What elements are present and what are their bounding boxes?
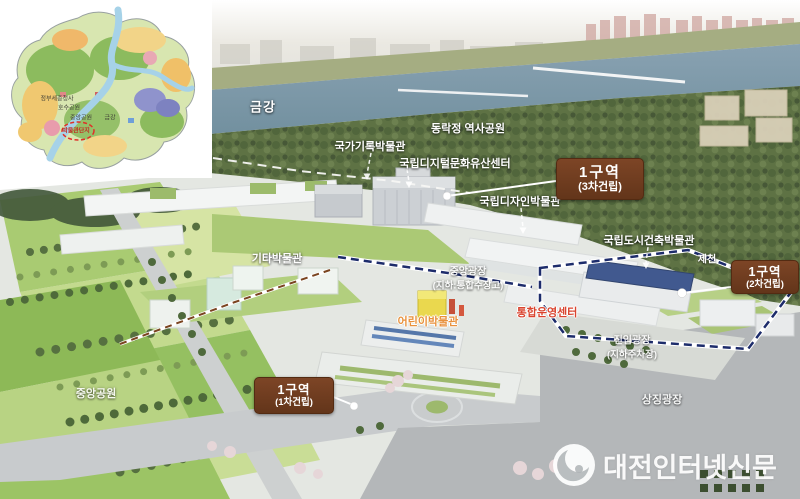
central-plaza-title: 중앙광장 [450,267,487,278]
watermark-text: 대전인터넷신문 [603,446,777,485]
label-national-archives-museum: 국가기록박물관 [335,138,406,154]
location-inset-map: 정부세종청사 호수공원 중앙공원 금강 박물관단지 [0,0,212,178]
label-central-park: 중앙공원 [76,385,116,401]
label-other-museums: 기타박물관 [252,250,303,266]
zone1-phase1-callout: 1구역 (1차건립) [254,377,334,414]
label-children-museum: 어린이박물관 [398,313,459,329]
entry-plaza-sub: (지하주차장) [607,347,657,361]
label-entry-plaza: 진입광장 (지하주차장) [607,332,657,361]
entry-plaza-title: 진입광장 [614,336,651,347]
zone1-phase2-title: 1구역 [732,265,798,279]
zone1-phase2-sub: (2차건립) [732,279,798,290]
inset-label-lake-park: 호수공원 [58,106,80,113]
news-photo-museum-complex-rendering: 정부세종청사 호수공원 중앙공원 금강 박물관단지 금강 국가기록박물관 동락정… [0,0,800,499]
label-jecheon-stream: 제천 [698,251,716,266]
inset-label-central-park: 중앙공원 [70,116,92,123]
inset-label-geum-river: 금강 [104,116,115,123]
zone1-phase3-sub: (3차건립) [557,181,643,194]
label-symbol-plaza: 상징광장 [642,391,682,407]
inset-label-government-complex: 정부세종청사 [40,97,73,104]
label-integrated-operation-center: 통합운영센터 [517,304,578,320]
label-geum-river: 금강 [250,97,276,116]
zone1-phase1-sub: (1차건립) [255,397,333,408]
central-plaza-sub: (지하:통합수장고) [433,278,504,292]
label-national-design-museum: 국립디자인박물관 [480,193,561,209]
roundabout-green [426,401,448,414]
inset-label-museum-complex: 박물관단지 [62,129,90,136]
zone1-phase2-callout: 1구역 (2차건립) [731,260,799,294]
zone1-phase1-title: 1구역 [255,383,333,397]
city-plan-map [0,0,212,178]
label-digital-heritage-center: 국립디지털문화유산센터 [399,155,510,171]
label-urban-architecture-museum: 국립도시건축박물관 [603,232,694,248]
zone1-phase3-callout: 1구역 (3차건립) [556,158,644,200]
watermark: 대전인터넷신문 [551,442,777,488]
label-dongnakjeong-history-park: 동락정 역사공원 [431,120,505,136]
news-logo-icon [551,442,597,488]
label-central-plaza: 중앙광장 (지하:통합수장고) [433,263,504,292]
zone1-phase3-title: 1구역 [557,164,643,181]
